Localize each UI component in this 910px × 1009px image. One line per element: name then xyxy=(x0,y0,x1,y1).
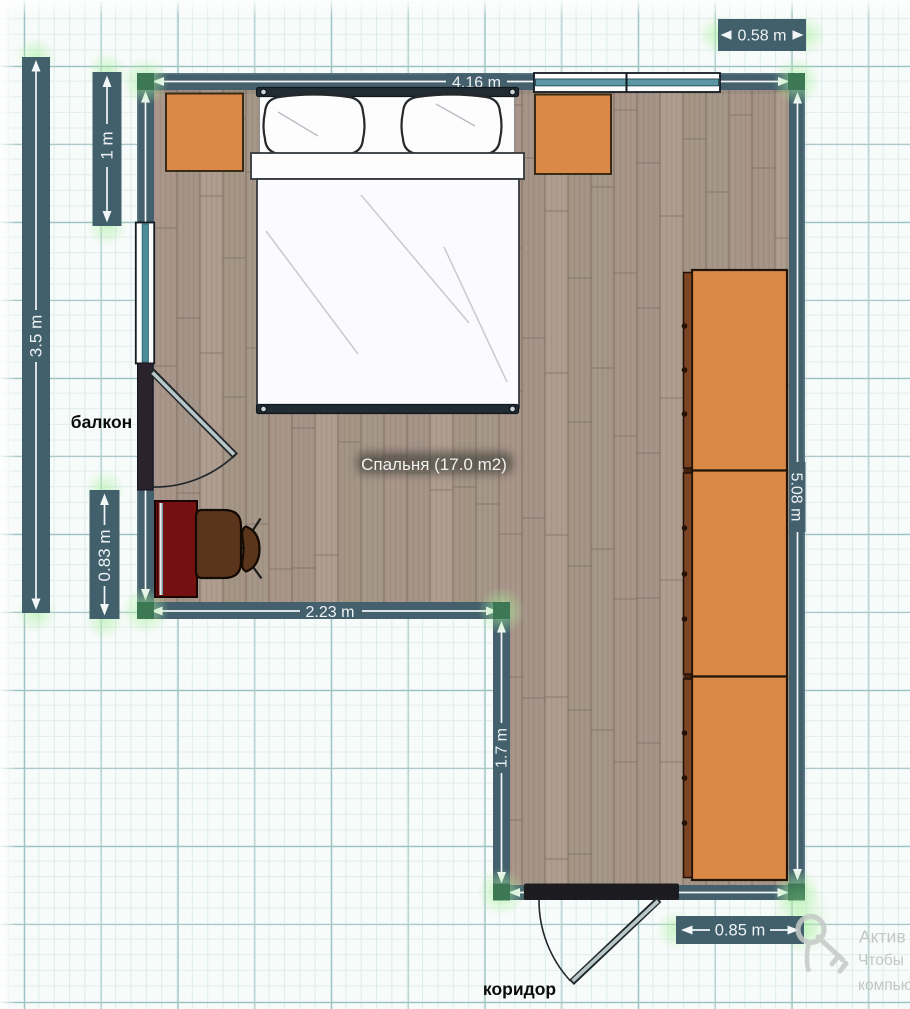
svg-text:2.23 m: 2.23 m xyxy=(306,604,355,621)
svg-text:3.5 m: 3.5 m xyxy=(27,315,46,358)
svg-text:Спальня (17.0 m2): Спальня (17.0 m2) xyxy=(361,455,507,474)
svg-text:0.85 m: 0.85 m xyxy=(715,922,765,940)
svg-text:0.58 m: 0.58 m xyxy=(738,28,787,45)
svg-text:1.7 m: 1.7 m xyxy=(494,728,511,768)
svg-text:1 m: 1 m xyxy=(98,131,117,159)
svg-text:балкон: балкон xyxy=(71,412,132,432)
svg-text:5.08 m: 5.08 m xyxy=(788,473,805,522)
svg-text:Актив: Актив xyxy=(859,927,906,947)
svg-text:Чтобы: Чтобы xyxy=(858,952,904,969)
svg-text:коридор: коридор xyxy=(483,979,556,999)
svg-text:0.83 m: 0.83 m xyxy=(95,530,114,582)
svg-text:компью: компью xyxy=(858,977,910,994)
